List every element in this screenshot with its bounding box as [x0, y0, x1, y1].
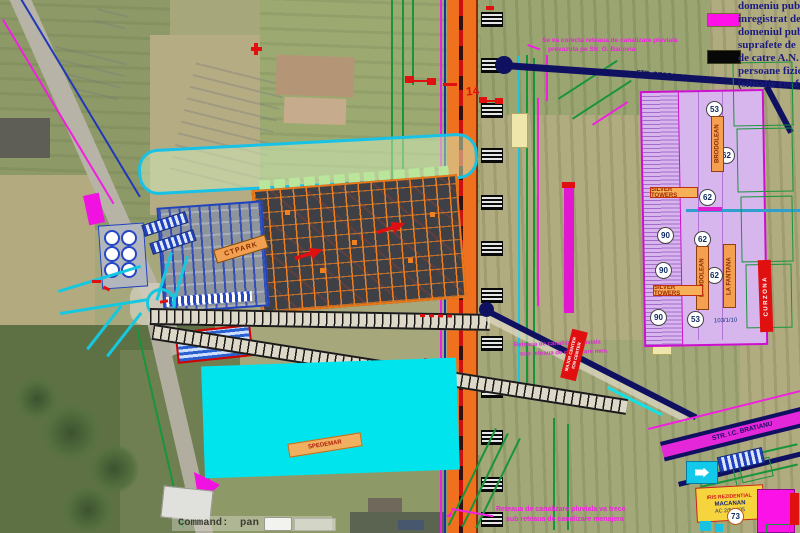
red-block — [790, 493, 799, 525]
owner-label-vertical: BRODOLEAN — [696, 246, 709, 310]
orange-dot — [285, 210, 290, 215]
red-marker-line — [407, 80, 431, 82]
tree — [88, 445, 140, 493]
legend-line: persoane fizic — [738, 66, 800, 77]
legend-line: de catre A.N. — [738, 53, 799, 64]
parcel-number: 53 — [687, 311, 704, 328]
legend-line: (situatie conf — [738, 79, 799, 90]
curzona-label: CURZONA — [758, 260, 774, 332]
culvert-hatch — [481, 336, 503, 351]
cyan-square — [715, 524, 723, 532]
highway-edge-dark — [476, 0, 478, 533]
red-marker — [443, 83, 457, 86]
parcel-number-text: 73 — [731, 512, 740, 521]
silver-towers-text: SILVER TOWERS — [654, 285, 702, 296]
culvert-hatch — [481, 241, 503, 256]
cad-line-green — [567, 424, 569, 530]
tree — [60, 488, 116, 532]
iris-line1: IRIS REZIDENTIAL — [707, 493, 752, 500]
tree — [14, 378, 60, 420]
cad-line-green — [412, 0, 414, 85]
parcel-number: 73 — [727, 508, 744, 525]
orange-dot — [430, 212, 435, 217]
culvert-hatch — [481, 103, 503, 118]
legend-swatch-magenta — [707, 13, 741, 27]
orange-dot — [352, 240, 357, 245]
cyan-square — [700, 521, 711, 531]
legend-line: domeniu publ — [738, 1, 800, 12]
tank — [121, 246, 137, 262]
culvert-hatch — [481, 148, 503, 163]
silver-towers-label: SILVER TOWERS — [650, 187, 698, 198]
green-parcel — [766, 524, 790, 533]
cad-line-magenta — [546, 55, 548, 101]
parcel-number-text: 53 — [710, 105, 719, 114]
culvert-hatch — [481, 195, 503, 210]
parcel-number-text: 62 — [703, 193, 712, 202]
orange-dot — [408, 258, 413, 263]
parcel-number: 90 — [655, 262, 672, 279]
legend-line: inregistrat de — [738, 14, 800, 25]
legend-swatch-black — [707, 50, 741, 64]
network-note-bottom-line1: Reteaua de canalizare pluviala va trece — [496, 506, 626, 513]
satellite-field — [0, 175, 95, 325]
silver-towers-text: SILVER TOWERS — [651, 187, 697, 198]
red-marker — [486, 6, 494, 10]
command-label: Command: — [178, 518, 228, 529]
magenta-bar — [564, 187, 574, 313]
white-arrow-icon — [695, 468, 709, 478]
parcel-number-text: 53 — [691, 315, 700, 324]
tank — [121, 230, 137, 246]
tank — [104, 246, 120, 262]
red-dashes — [420, 314, 454, 318]
cad-line-magenta — [698, 207, 722, 211]
owner-label-text: BRODOLEAN — [715, 125, 721, 164]
parcel-number: 62 — [699, 189, 716, 206]
yellow-parcel — [511, 113, 528, 148]
orange-dot — [320, 268, 325, 273]
command-input-value[interactable]: pan — [240, 518, 259, 529]
cyan-flood-parcel — [201, 358, 460, 479]
parcel-number: 90 — [650, 309, 667, 326]
parcel-number-text: 90 — [661, 231, 670, 240]
cad-line-green — [553, 418, 555, 530]
owner-label-vertical: BRODOLEAN — [711, 116, 724, 172]
culvert-hatch — [481, 288, 503, 303]
correction-note-line2: prevazuta pe Str. G. Bacovia — [548, 47, 635, 54]
network-note-bottom-line2: sub reteaua de canalizare menajera — [506, 516, 624, 523]
warehouse-roof — [275, 55, 354, 98]
legend-line: suprafete de — [738, 40, 796, 51]
cyan-arrow-box — [686, 461, 718, 484]
owner-label-text: LA FANTANA — [727, 257, 733, 295]
warehouse-hatched-building — [251, 174, 466, 314]
parcel-number: 90 — [657, 227, 674, 244]
iris-line2: MACANAN — [714, 500, 745, 508]
marker-14-text: 14 — [466, 85, 480, 98]
red-marker — [562, 182, 575, 188]
correction-note-line1: Se va corecta reteaua de canalizare pluv… — [542, 38, 678, 45]
village-building — [368, 498, 402, 512]
parcel-number-text: 62 — [698, 235, 707, 244]
legend-line: domeniul pub — [738, 27, 800, 38]
warehouse-roof — [0, 118, 50, 158]
command-ui-box — [294, 518, 336, 531]
silver-towers-label: SILVER TOWERS — [653, 285, 703, 296]
cad-map-canvas: STR. GEORGE BACOVIA 53 62 62 90 62 90 62… — [0, 0, 800, 533]
spedemar-text: SPEDEMAR — [308, 439, 343, 450]
parcel-number-text: 90 — [654, 313, 663, 322]
green-parcel — [740, 196, 793, 263]
owner-label-vertical: LA FANTANA — [723, 244, 736, 308]
warehouse-roof — [284, 97, 347, 125]
red-marker — [254, 43, 258, 55]
red-marker — [92, 280, 101, 283]
culvert-hatch — [481, 12, 503, 27]
cad-line-magenta — [537, 98, 539, 306]
green-parcel — [736, 128, 793, 193]
command-ui-box[interactable] — [264, 517, 292, 531]
parcel-number-text: 90 — [659, 266, 668, 275]
red-marker-line — [481, 100, 498, 102]
parcel-ref-text: 103/1/10 — [714, 318, 738, 325]
curzona-text: CURZONA — [762, 276, 769, 317]
village-building — [398, 520, 424, 530]
parcel-number-text: 62 — [710, 271, 719, 280]
tank — [104, 230, 120, 246]
